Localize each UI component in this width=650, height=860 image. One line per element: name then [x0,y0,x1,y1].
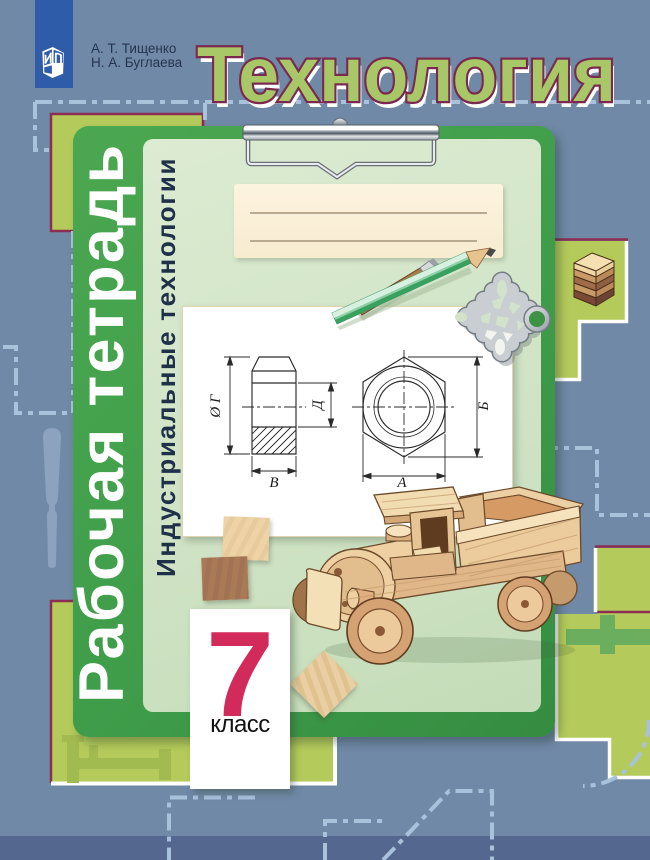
svg-text:В: В [269,475,278,491]
svg-text:Б: Б [476,401,492,411]
svg-text:Технология: Технология [197,30,616,118]
svg-text:Д: Д [310,399,326,412]
svg-text:Ø Г: Ø Г [208,393,224,419]
